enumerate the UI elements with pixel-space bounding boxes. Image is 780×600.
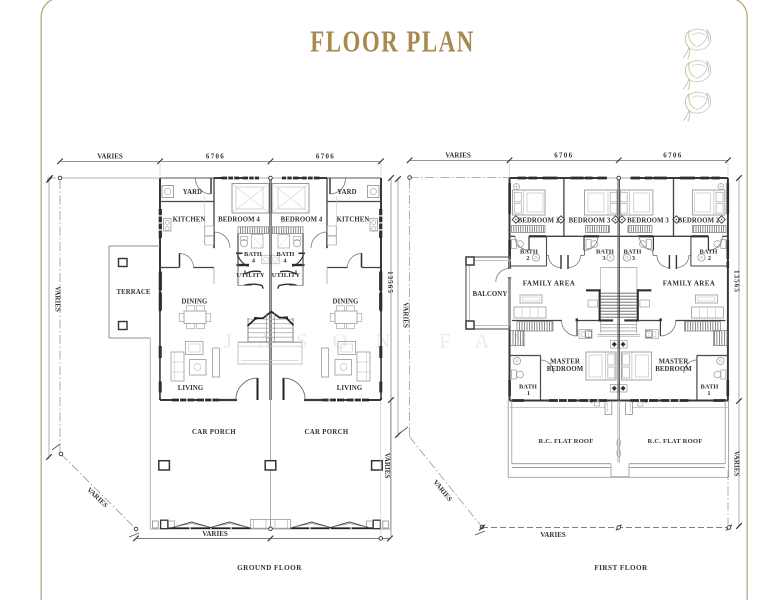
svg-text:VARIES: VARIES [540, 531, 566, 539]
svg-text:2: 2 [526, 255, 529, 262]
svg-text:N: N [512, 329, 527, 353]
svg-text:N: N [375, 329, 390, 353]
svg-text:KITCHEN: KITCHEN [337, 217, 370, 224]
svg-text:VARIES: VARIES [97, 152, 123, 160]
svg-text:6706: 6706 [206, 152, 225, 160]
svg-text:1: 1 [707, 390, 710, 397]
svg-text:BEDROOM 2: BEDROOM 2 [678, 218, 720, 225]
svg-text:BEDROOM: BEDROOM [547, 366, 584, 373]
svg-text:VARIES: VARIES [383, 453, 391, 479]
svg-text:KITCHEN: KITCHEN [173, 217, 206, 224]
svg-text:2: 2 [708, 255, 711, 262]
svg-text:R.C. FLAT ROOF: R.C. FLAT ROOF [539, 438, 594, 445]
svg-text:VARIES: VARIES [202, 530, 228, 538]
svg-text:MASTER: MASTER [550, 359, 580, 366]
svg-text:1: 1 [527, 390, 530, 397]
svg-text:UTILITY: UTILITY [272, 272, 301, 279]
svg-text:BEDROOM 4: BEDROOM 4 [281, 217, 323, 224]
svg-text:BEDROOM 2: BEDROOM 2 [518, 218, 560, 225]
svg-text:6706: 6706 [316, 152, 335, 160]
svg-text:13565: 13565 [386, 271, 394, 294]
svg-text:LIVING: LIVING [337, 385, 363, 392]
svg-text:YARD: YARD [337, 189, 356, 196]
svg-text:VARIES: VARIES [445, 151, 471, 159]
svg-text:CAR PORCH: CAR PORCH [304, 429, 348, 436]
svg-text:BEDROOM 4: BEDROOM 4 [218, 217, 260, 224]
svg-text:FIRST FLOOR: FIRST FLOOR [594, 564, 648, 572]
svg-text:A: A [474, 329, 490, 353]
svg-text:FLOOR PLAN: FLOOR PLAN [310, 24, 474, 58]
svg-text:VARIES: VARIES [732, 451, 740, 477]
svg-text:GROUND FLOOR: GROUND FLOOR [237, 564, 302, 572]
svg-text:6706: 6706 [663, 151, 682, 159]
svg-text:BEDROOM 3: BEDROOM 3 [569, 218, 611, 225]
svg-text:FAMILY AREA: FAMILY AREA [663, 280, 716, 288]
svg-text:UTILITY: UTILITY [236, 272, 265, 279]
svg-text:3: 3 [632, 255, 635, 262]
svg-text:R.C. FLAT ROOF: R.C. FLAT ROOF [648, 438, 703, 445]
svg-text:VARIES: VARIES [401, 302, 409, 328]
svg-text:F: F [439, 329, 451, 353]
svg-text:DINING: DINING [333, 299, 360, 306]
svg-text:DINING: DINING [182, 299, 209, 306]
svg-text:YARD: YARD [183, 189, 202, 196]
svg-text:O: O [332, 329, 347, 353]
svg-text:FAMILY AREA: FAMILY AREA [523, 280, 576, 288]
svg-text:VARIES: VARIES [54, 286, 62, 312]
svg-text:BALCONY: BALCONY [473, 291, 508, 298]
svg-text:CAR PORCH: CAR PORCH [192, 429, 236, 436]
svg-text:LIVING: LIVING [178, 385, 204, 392]
svg-text:MASTER: MASTER [659, 359, 689, 366]
svg-text:BEDROOM: BEDROOM [655, 366, 692, 373]
svg-text:6706: 6706 [554, 151, 573, 159]
svg-text:BEDROOM 3: BEDROOM 3 [627, 218, 669, 225]
svg-text:3: 3 [602, 255, 605, 262]
svg-text:13565: 13565 [732, 270, 740, 293]
svg-text:J: J [224, 329, 232, 353]
svg-text:TERRACE: TERRACE [117, 289, 151, 296]
